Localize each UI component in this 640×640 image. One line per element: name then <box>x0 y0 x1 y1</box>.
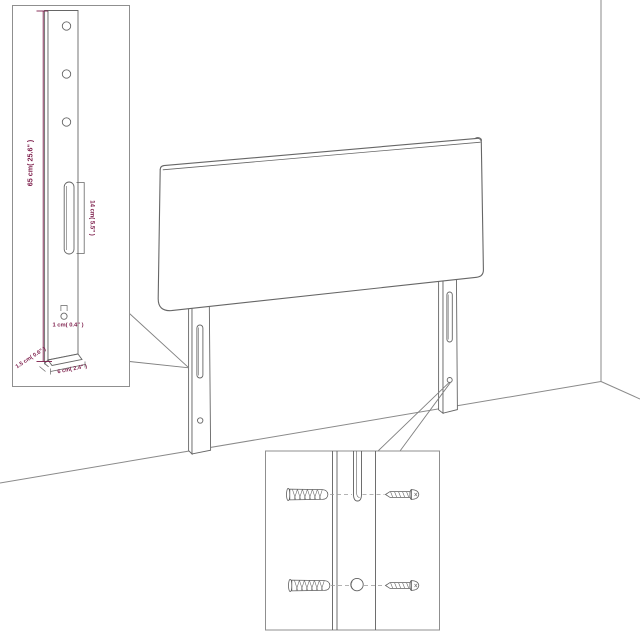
detail-mount-hole-1 <box>62 22 70 30</box>
left-leg-screw-hole <box>198 418 203 423</box>
screw-shaft <box>386 492 411 498</box>
wall-plug-collar <box>289 579 292 591</box>
right-leg-slot <box>447 292 452 342</box>
right-leg <box>439 273 458 414</box>
detail-mount-hole-2 <box>62 70 70 78</box>
detail-mount-hole-3 <box>62 118 70 126</box>
diagram-canvas: 65 cm( 25.6" ) 14 cm( 5.5" ) 1 cm( 0.4" … <box>0 0 640 640</box>
wall-plug-icon <box>287 488 328 500</box>
assembly-diagram: 65 cm( 25.6" ) 14 cm( 5.5" ) 1 cm( 0.4" … <box>0 0 640 640</box>
slot-length-label: 14 cm( 5.5" ) <box>89 200 95 236</box>
left-leg-side-face <box>189 303 192 454</box>
mounting-inset-box <box>266 451 440 630</box>
wall-plug-collar <box>287 488 290 500</box>
right-leg-screw-hole <box>447 378 452 383</box>
hole-size-label: 1 cm( 0.4" ) <box>52 323 83 329</box>
mounting-detail-inset <box>266 451 440 630</box>
wall-plug-icon <box>289 579 330 591</box>
detail-small-hole <box>61 313 67 319</box>
leg-height-label: 65 cm( 25.6" ) <box>26 139 35 186</box>
left-leg-slot <box>197 325 203 378</box>
detail-leg-side-face <box>45 11 48 364</box>
detail-slot <box>64 182 74 254</box>
left-leg <box>189 302 211 454</box>
screw-shaft <box>386 583 411 589</box>
leg-detail-inset: 65 cm( 25.6" ) 14 cm( 5.5" ) 1 cm( 0.4" … <box>13 6 130 387</box>
